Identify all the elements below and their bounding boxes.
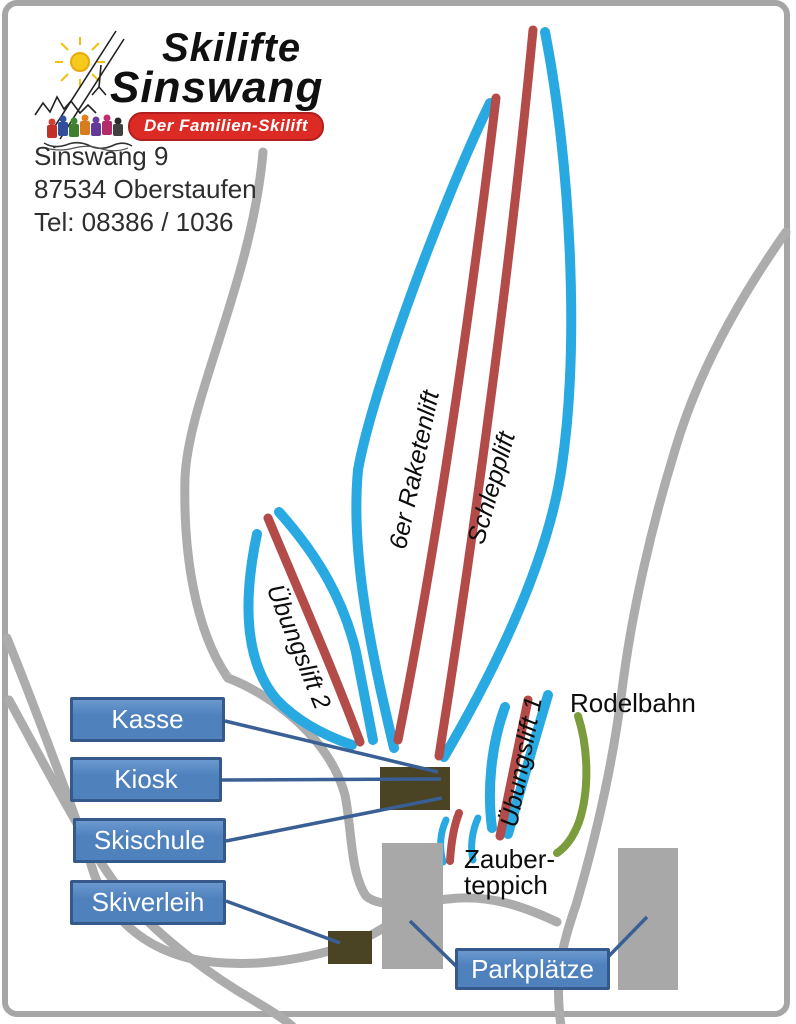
address-city: 87534 Oberstaufen	[34, 173, 257, 206]
poi-tag-skischule: Skischule	[73, 818, 226, 863]
logo-title-line1: Skilifte	[162, 28, 340, 68]
contact-block: Sinswang 9 87534 Oberstaufen Tel: 08386 …	[34, 140, 257, 239]
connector-skischule	[226, 798, 442, 841]
piste-main-right	[444, 32, 571, 757]
logo: Skilifte Sinswang Der Familien-Skilift	[110, 28, 340, 141]
poi-tag-skiverleih-label: Skiverleih	[92, 887, 205, 918]
connector-kiosk	[222, 779, 441, 780]
logo-tagline-badge: Der Familien-Skilift	[128, 112, 324, 141]
label-zauberteppich-line2: teppich	[464, 872, 555, 898]
parking-area-right	[618, 848, 678, 990]
poi-tag-parkplaetze: Parkplätze	[455, 948, 610, 990]
label-rodelbahn: Rodelbahn	[570, 688, 696, 719]
zauberteppich-line	[450, 813, 459, 861]
rodelbahn-track	[557, 716, 586, 853]
label-zauberteppich-line1: Zauber-	[464, 846, 555, 872]
ski-area-map: Skilifte Sinswang Der Familien-Skilift S…	[0, 0, 796, 1024]
poi-tag-skiverleih: Skiverleih	[70, 880, 226, 925]
poi-tag-skischule-label: Skischule	[94, 825, 205, 856]
parking-area-left	[382, 843, 443, 969]
address-phone: Tel: 08386 / 1036	[34, 206, 257, 239]
poi-tag-kasse: Kasse	[70, 697, 225, 742]
label-zauberteppich: Zauber- teppich	[464, 846, 555, 898]
skiverleih-building	[328, 931, 372, 964]
logo-title-line2: Sinswang	[110, 66, 340, 110]
poi-tag-kiosk-label: Kiosk	[114, 764, 178, 795]
connector-skiverleih	[226, 901, 340, 943]
poi-tag-kiosk: Kiosk	[70, 757, 222, 802]
poi-tag-parkplaetze-label: Parkplätze	[471, 954, 594, 985]
mountains-icon	[35, 97, 96, 115]
address-street: Sinswang 9	[34, 140, 257, 173]
poi-tag-kasse-label: Kasse	[111, 704, 183, 735]
